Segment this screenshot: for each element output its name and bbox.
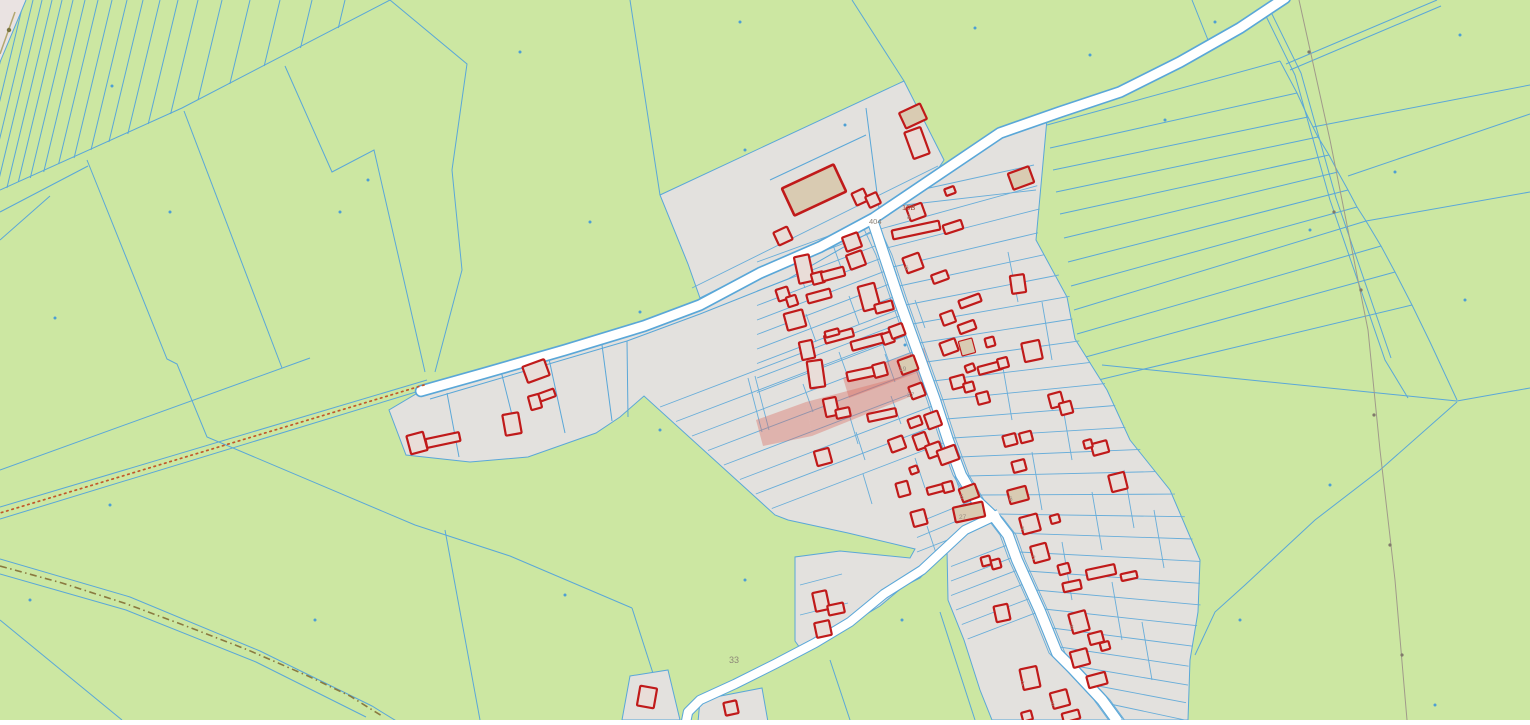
svg-text:19: 19 [899, 366, 907, 373]
svg-text:2: 2 [1032, 555, 1036, 562]
svg-text:27: 27 [907, 392, 915, 399]
svg-text:8: 8 [907, 214, 911, 221]
svg-text:10B: 10B [902, 203, 915, 212]
svg-text:6: 6 [1009, 496, 1013, 503]
svg-text:33: 33 [729, 655, 739, 665]
svg-text:8: 8 [1070, 624, 1074, 631]
svg-text:6: 6 [905, 265, 909, 272]
svg-text:5: 5 [960, 494, 964, 501]
svg-text:5: 5 [1051, 701, 1055, 708]
svg-text:404: 404 [869, 217, 882, 226]
svg-text:27: 27 [959, 514, 967, 521]
svg-text:7: 7 [1021, 681, 1025, 688]
svg-text:4: 4 [1021, 526, 1025, 533]
